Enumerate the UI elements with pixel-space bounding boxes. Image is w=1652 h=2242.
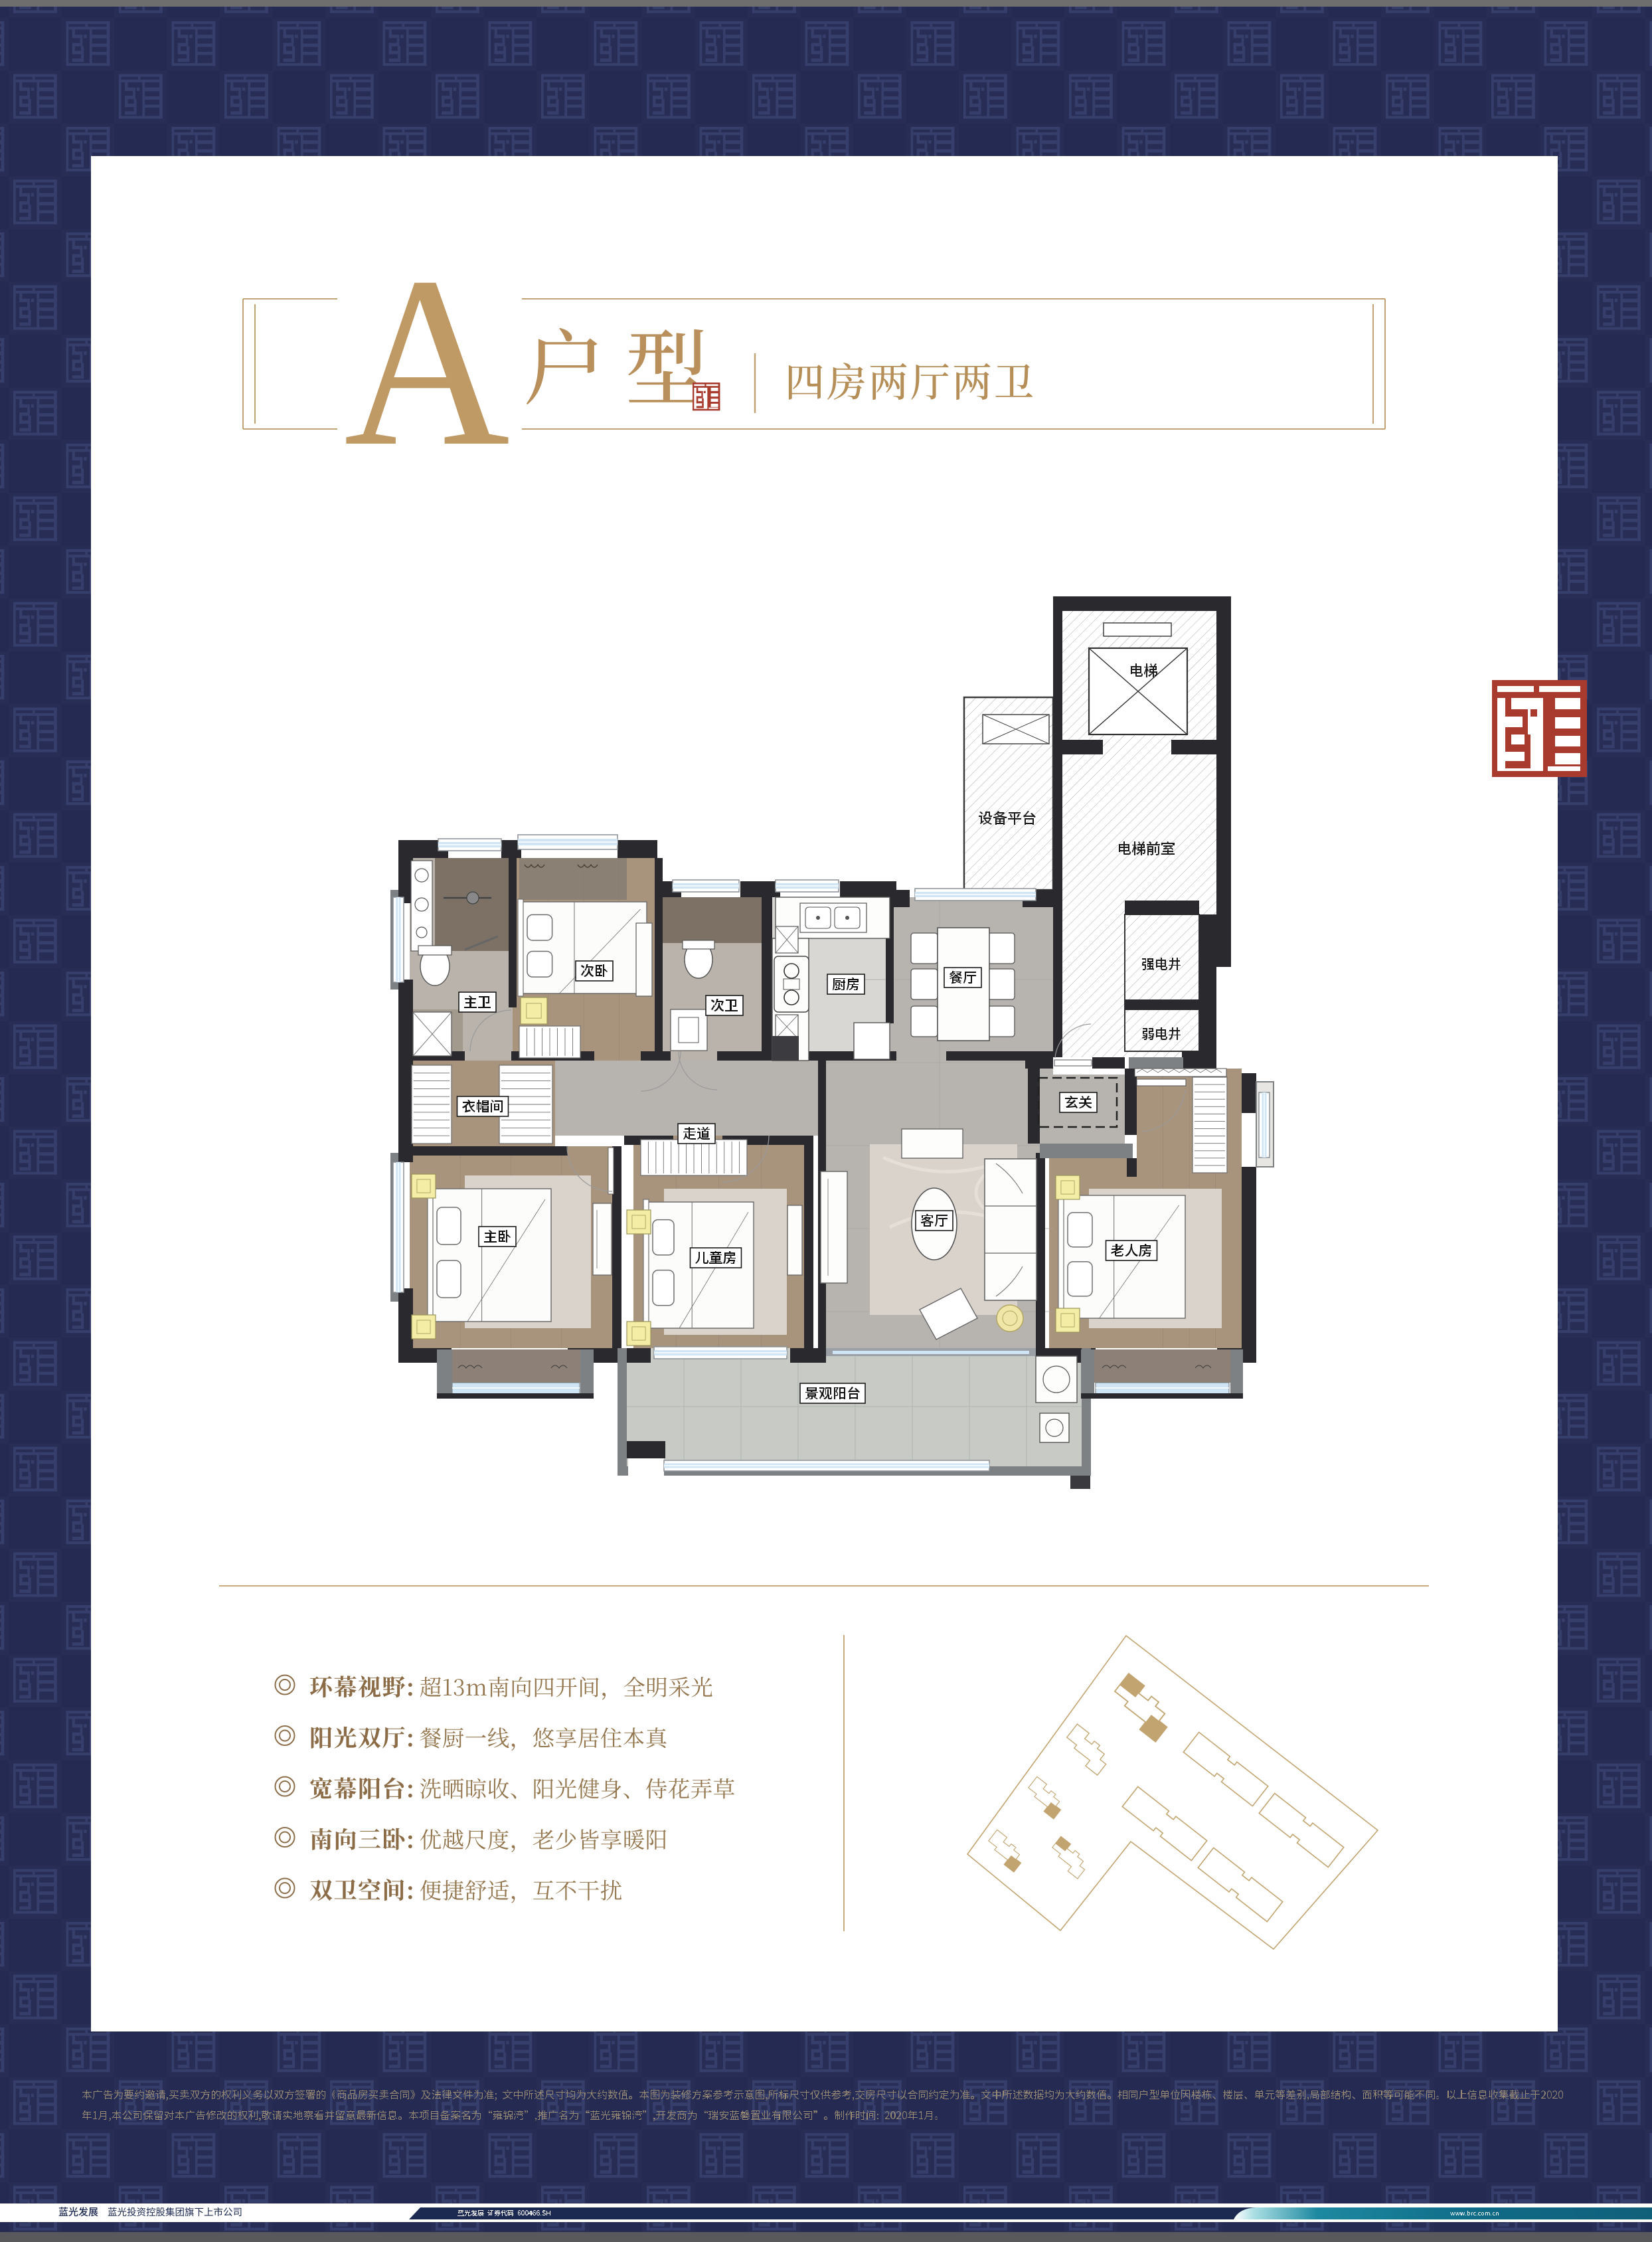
svg-text:A: A <box>344 227 510 497</box>
